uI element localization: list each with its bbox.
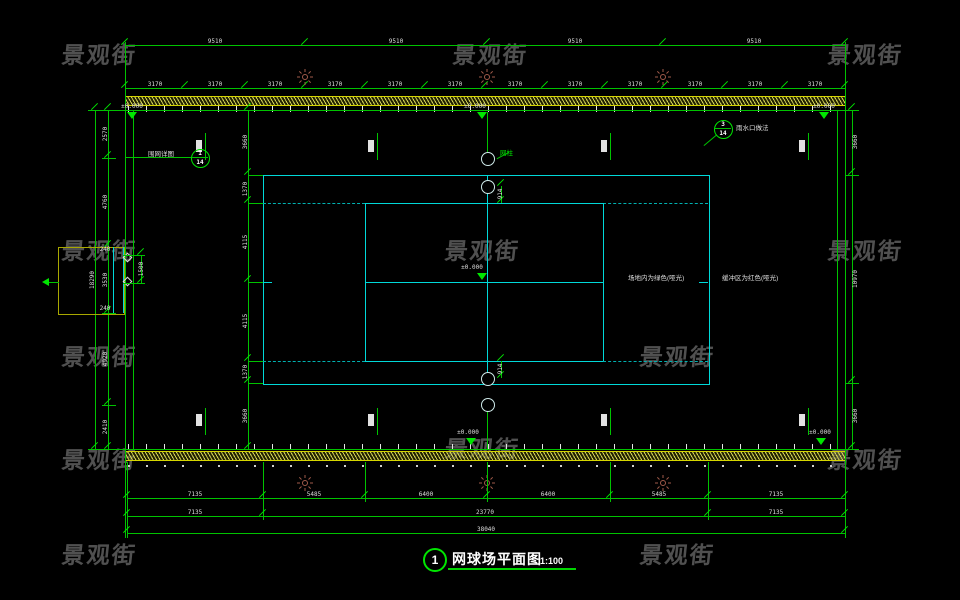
pole-line <box>377 133 378 160</box>
dimension-label: 7135 <box>165 509 225 516</box>
court-singles-sideline-top-dashed-left <box>263 203 365 204</box>
extension-line <box>88 449 125 450</box>
floodlight-icon <box>655 69 671 85</box>
dimension-label: 7135 <box>746 509 806 516</box>
dimension-label: 240 <box>96 305 114 312</box>
extension-line <box>248 282 263 283</box>
dimension-label: 5485 <box>284 491 344 498</box>
court-center-service-line <box>365 282 603 283</box>
dimension-label: 5485 <box>629 491 689 498</box>
extension-line <box>845 175 859 176</box>
pole-line <box>610 408 611 435</box>
dimension-label: 9510 <box>366 38 426 45</box>
dimension-label: 3170 <box>185 81 245 88</box>
dimension-label: 7135 <box>165 491 225 498</box>
dimension-label: 3170 <box>665 81 725 88</box>
boundary-line-left-inner <box>133 110 134 450</box>
extension-line <box>248 175 263 176</box>
court-center-mark-left <box>263 282 272 283</box>
floodlight-icon <box>297 475 313 491</box>
fence-wall-bottom <box>125 451 845 461</box>
court-singles-sideline-bottom-dashed-right <box>603 361 708 362</box>
dimension-line <box>125 45 845 46</box>
dimension-tick <box>137 248 144 255</box>
pole-line <box>205 408 206 435</box>
pole-marker <box>196 414 202 426</box>
court-singles-sideline-bottom-dashed-left <box>263 361 365 362</box>
dimension-label: 9510 <box>185 38 245 45</box>
watermark: 景观街 <box>60 536 139 570</box>
watermark: 景观街 <box>451 36 530 70</box>
boundary-line-top <box>125 110 845 111</box>
drawing-number-bubble: 1 <box>423 548 447 572</box>
level-label: ±0.000 <box>112 103 152 110</box>
floodlight-icon <box>655 475 671 491</box>
level-marker-icon <box>819 112 829 119</box>
boundary-line-right-inner <box>837 110 838 450</box>
court-singles-sideline-top <box>365 203 603 204</box>
gate-wall-line <box>113 247 114 313</box>
watermark: 景观街 <box>60 36 139 70</box>
dimension-tick <box>848 103 855 110</box>
dimension-label: 1370 <box>242 354 250 390</box>
dimension-tick <box>659 38 666 45</box>
dimension-label: 38040 <box>456 526 516 533</box>
dimension-label: 1500 <box>138 255 146 283</box>
watermark: 景观街 <box>638 536 717 570</box>
dimension-label: 3170 <box>305 81 365 88</box>
callout-label: 围网详图 <box>148 148 174 158</box>
dimension-label: 4115 <box>242 303 250 339</box>
boundary-line-left <box>125 42 126 538</box>
extension-line <box>248 203 263 204</box>
pole-line <box>808 133 809 160</box>
net-post-bottom <box>481 398 495 412</box>
dimension-label: 3170 <box>125 81 185 88</box>
dimension-tick <box>91 103 98 110</box>
floodlight-icon <box>297 69 313 85</box>
pole-marker <box>601 414 607 426</box>
dimension-label: 2570 <box>102 116 110 152</box>
extension-line <box>248 361 263 362</box>
extension-line <box>845 449 859 450</box>
pole-line <box>610 133 611 160</box>
level-label: ±0.000 <box>455 103 495 110</box>
dimension-label: 7135 <box>746 491 806 498</box>
gate-outline <box>58 247 125 315</box>
callout-label: 雨水口做法 <box>736 122 769 132</box>
pole-line <box>377 408 378 435</box>
pole-marker <box>368 414 374 426</box>
dimension-label: 4760 <box>102 184 110 220</box>
dimension-label: 4115 <box>242 224 250 260</box>
net-axis-line-top <box>487 112 488 152</box>
dimension-label: 3170 <box>245 81 305 88</box>
callout-sheet: 14 <box>714 130 732 137</box>
dimension-label: 3170 <box>785 81 845 88</box>
callout-divider <box>715 128 731 129</box>
dimension-label: 3170 <box>545 81 605 88</box>
dimension-label: 23770 <box>455 509 515 516</box>
dimension-label: 1370 <box>242 171 250 207</box>
singles-stick-top <box>481 180 495 194</box>
entry-arrow-line <box>49 282 59 283</box>
dimension-line <box>125 88 845 89</box>
floodlight-icon <box>479 69 495 85</box>
dimension-label: 4920 <box>102 341 110 377</box>
level-label: ±0.000 <box>452 264 492 271</box>
dimension-label: 6400 <box>396 491 456 498</box>
extension-line <box>248 383 263 384</box>
dimension-label: 3170 <box>725 81 785 88</box>
court-center-mark-right <box>699 282 708 283</box>
court-singles-sideline-top-dashed-right <box>603 203 708 204</box>
title-underline <box>448 568 576 570</box>
court-singles-sideline-bottom <box>365 361 603 362</box>
drawing-scale: 1:100 <box>540 556 563 566</box>
callout-divider <box>192 157 208 158</box>
court-net-line <box>487 175 488 383</box>
dimension-label: 3660 <box>242 124 250 160</box>
dimension-label: 240 <box>96 246 114 253</box>
extension-line <box>487 462 488 502</box>
callout-number: 3 <box>714 121 732 128</box>
extension-line <box>610 462 611 502</box>
dimension-label: 3660 <box>242 398 250 434</box>
dimension-label: 3170 <box>425 81 485 88</box>
level-marker-icon <box>816 438 826 445</box>
level-marker-icon <box>477 273 487 280</box>
dimension-label: 3660 <box>852 124 860 160</box>
dimension-label: 2410 <box>102 409 110 445</box>
court-service-line-right <box>603 203 604 361</box>
dimension-label: 10970 <box>852 261 860 297</box>
callout-sheet: 14 <box>191 159 209 166</box>
pole-marker <box>799 414 805 426</box>
fence-post-dots <box>128 465 842 467</box>
level-label: ±0.000 <box>448 429 488 436</box>
extension-line <box>845 110 859 111</box>
pole-marker <box>368 140 374 152</box>
dimension-label: 9510 <box>724 38 784 45</box>
level-label: ±0.000 <box>800 429 840 436</box>
watermark: 景观街 <box>60 338 139 372</box>
dimension-line <box>127 516 845 517</box>
watermark: 景观街 <box>826 36 905 70</box>
entry-arrow-icon <box>42 278 49 286</box>
callout-number: 1 <box>191 150 209 157</box>
dimension-label: 3170 <box>365 81 425 88</box>
dimension-line <box>127 498 845 499</box>
surface-note-inner: 场地内为绿色(哑光) <box>628 272 684 282</box>
extension-line <box>845 383 859 384</box>
singles-stick-bottom <box>481 372 495 386</box>
extension-line <box>365 462 366 502</box>
surface-note-buffer: 缓冲区为红色(哑光) <box>722 272 778 282</box>
level-label: ±0.000 <box>804 103 844 110</box>
cad-sheet: 景观街 景观街 景观街 景观街 景观街 景观街 景观街 景观街 景观街 景观街 … <box>0 0 960 600</box>
dimension-label: 914 <box>497 182 505 206</box>
dimension-label: 914 <box>497 357 505 381</box>
dimension-tick <box>301 38 308 45</box>
level-marker-icon <box>466 438 476 445</box>
extension-line <box>88 110 125 111</box>
net-post-top <box>481 152 495 166</box>
boundary-line-bottom <box>125 449 845 450</box>
dimension-label: 6400 <box>518 491 578 498</box>
pole-marker <box>601 140 607 152</box>
extension-line <box>123 283 145 284</box>
dimension-line <box>127 533 845 534</box>
dimension-tick <box>104 103 111 110</box>
drawing-title: 网球场平面图 <box>452 549 542 569</box>
dimension-label: 3660 <box>852 398 860 434</box>
level-marker-icon <box>477 112 487 119</box>
dimension-label: 9510 <box>545 38 605 45</box>
pole-marker <box>799 140 805 152</box>
level-marker-icon <box>127 112 137 119</box>
